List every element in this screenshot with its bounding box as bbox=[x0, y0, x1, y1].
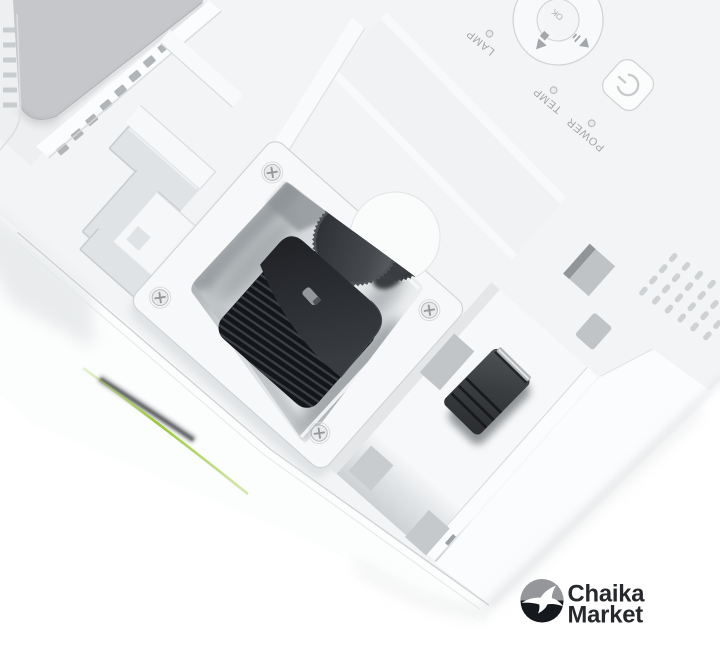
svg-text:Market: Market bbox=[568, 602, 644, 629]
